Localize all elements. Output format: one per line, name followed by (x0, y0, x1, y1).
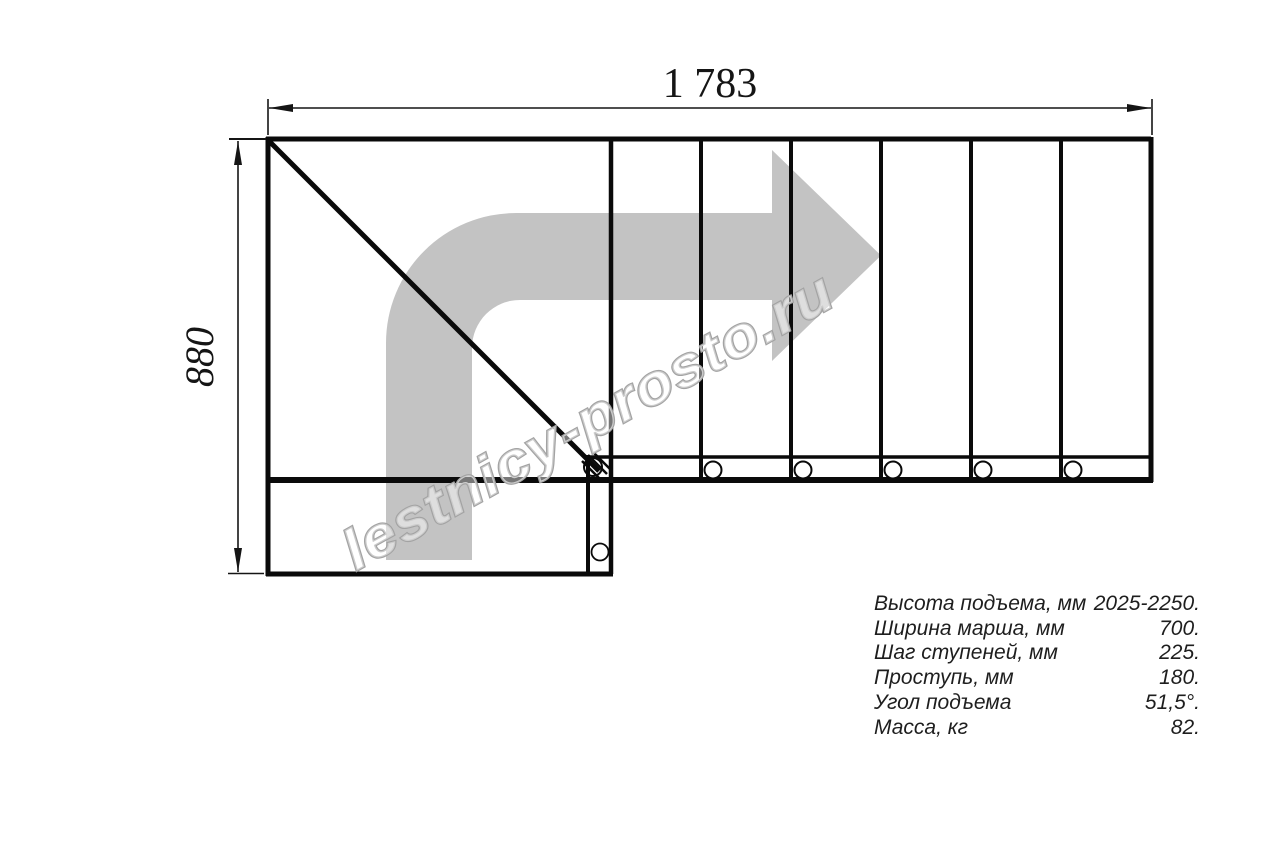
spec-value: 225. (1159, 641, 1200, 666)
spec-label: Высота подъема, мм (874, 592, 1086, 617)
post-circle (1065, 462, 1082, 479)
dim-arrowhead-right (1127, 104, 1151, 112)
post-circle (705, 462, 722, 479)
post-circles (584, 458, 1082, 561)
spec-label: Ширина марша, мм (874, 617, 1065, 642)
spec-value: 51,5°. (1145, 691, 1200, 716)
stair-drawing-page: 1 783 880 lestnicy-prosto.ru Высота подъ… (0, 0, 1280, 853)
dim-arrowhead-top (234, 141, 242, 165)
spec-row: Высота подъема, мм2025-2250. (874, 592, 1200, 617)
spec-label: Проступь, мм (874, 666, 1014, 691)
height-dimension-label: 880 (177, 327, 222, 387)
spec-value: 180. (1159, 666, 1200, 691)
dim-arrowhead-left (269, 104, 293, 112)
spec-label: Угол подъема (874, 691, 1011, 716)
spec-row: Масса, кг82. (874, 716, 1200, 741)
spec-row: Проступь, мм180. (874, 666, 1200, 691)
spec-label: Шаг ступеней, мм (874, 641, 1058, 666)
spec-label: Масса, кг (874, 716, 968, 741)
post-circle (885, 462, 902, 479)
post-circle (975, 462, 992, 479)
spec-value: 2025-2250. (1094, 592, 1200, 617)
spec-row: Угол подъема51,5°. (874, 691, 1200, 716)
spec-value: 82. (1171, 716, 1200, 741)
height-dimension (228, 139, 266, 574)
dim-arrowhead-bottom (234, 548, 242, 572)
post-circle (795, 462, 812, 479)
width-dimension-label: 1 783 (663, 61, 758, 107)
lower-post-circle (592, 544, 609, 561)
spec-row: Ширина марша, мм700. (874, 617, 1200, 642)
spec-value: 700. (1159, 617, 1200, 642)
specs-table: Высота подъема, мм2025-2250.Ширина марша… (874, 592, 1200, 740)
spec-row: Шаг ступеней, мм225. (874, 641, 1200, 666)
